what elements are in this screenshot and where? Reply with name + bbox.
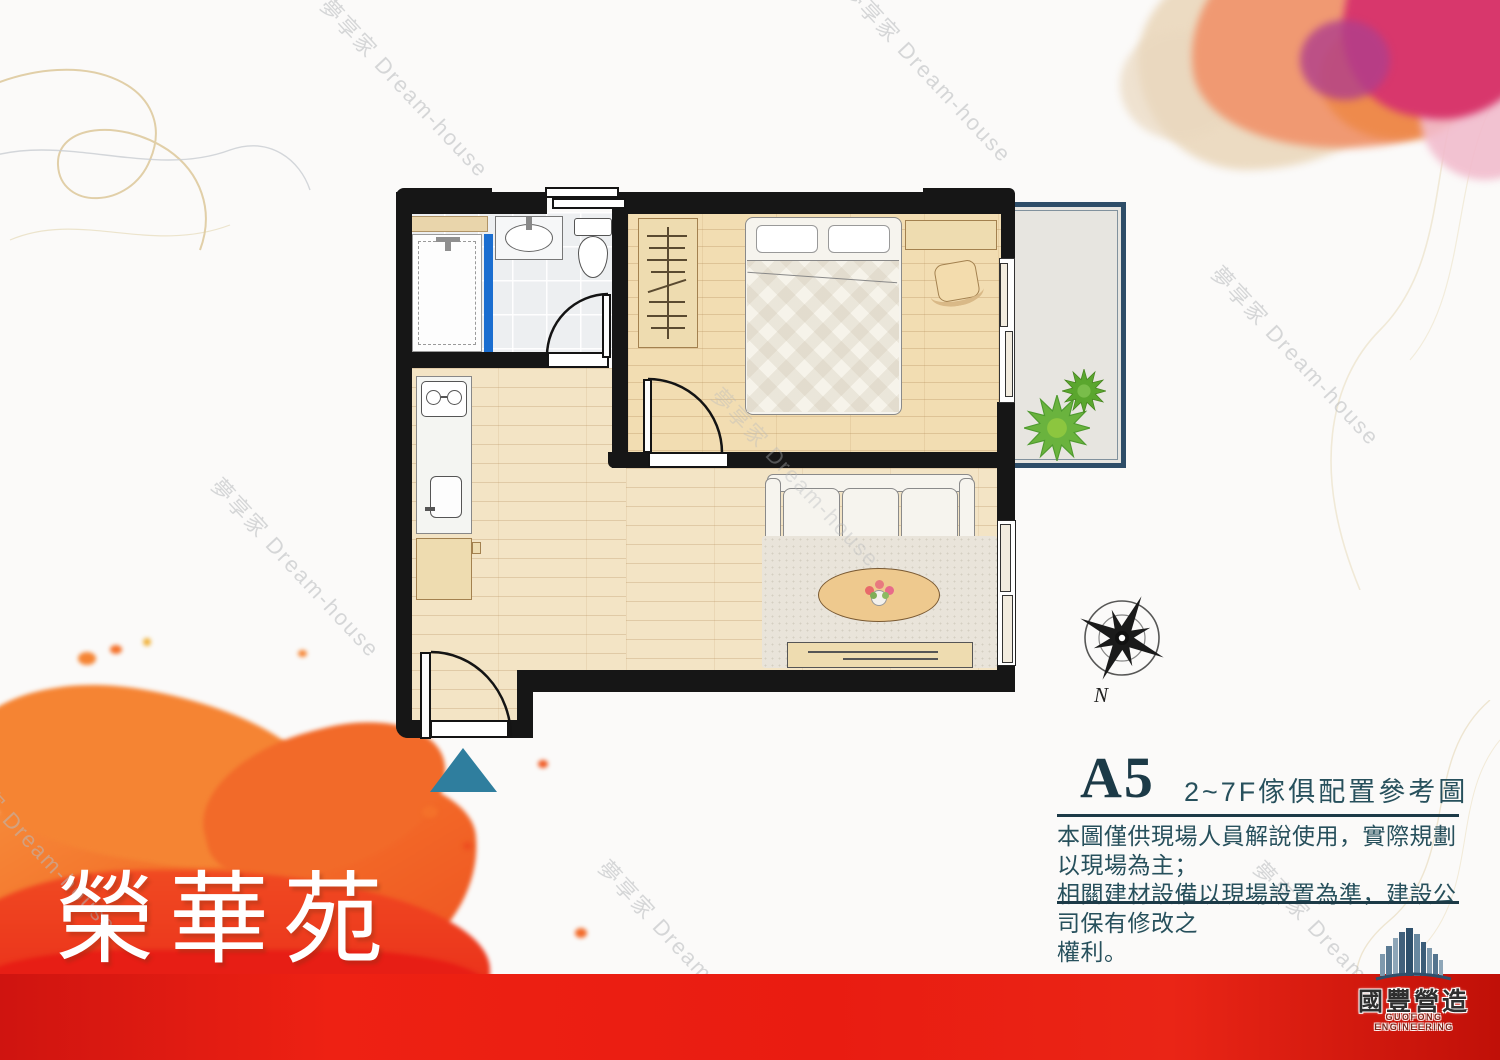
door-swing-arcs	[396, 186, 1129, 752]
poster: N A5 2~7F傢俱配置參考圖 本圖僅供現場人員解說使用，實際規劃以現場為主；…	[0, 0, 1500, 1060]
project-title: 榮華苑	[55, 838, 397, 983]
unit-subtitle: 2~7F傢俱配置參考圖	[1184, 770, 1468, 809]
bottom-red-band	[0, 974, 1500, 1060]
floor-plan	[396, 186, 1129, 752]
watermark: 夢享家 Dream-house	[837, 0, 1021, 169]
gold-swirl-decoration	[1300, 30, 1500, 590]
gold-swirl-decoration	[0, 10, 360, 290]
developer-logo-subtitle: GUOFONG ENGINEERING	[1344, 1012, 1484, 1032]
unit-code: A5	[1080, 744, 1155, 811]
compass-north-label: N	[1093, 683, 1109, 707]
divider-rule	[1057, 814, 1459, 817]
buildings-skyline-icon	[1374, 924, 1454, 982]
compass-rose-icon: N	[1070, 588, 1174, 712]
divider-rule	[1057, 901, 1459, 904]
watermark: 夢享家 Dream-house	[205, 470, 389, 664]
entry-marker-triangle	[430, 748, 497, 792]
